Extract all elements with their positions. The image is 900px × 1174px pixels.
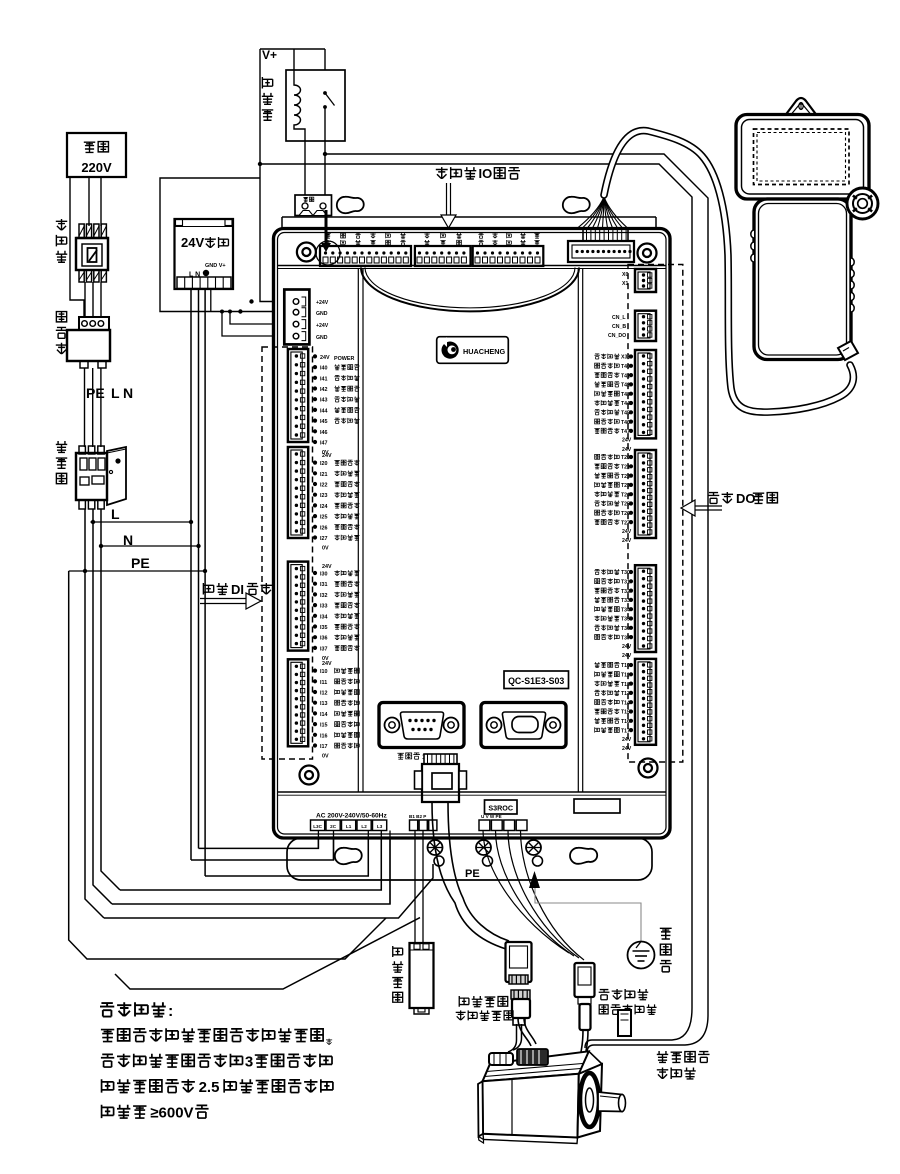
- svg-text:I21: I21: [320, 472, 328, 478]
- svg-text:DI: DI: [231, 582, 244, 597]
- svg-text:I15: I15: [320, 723, 328, 729]
- svg-text:I30: I30: [320, 572, 328, 578]
- svg-text:+24V: +24V: [316, 300, 329, 306]
- svg-text:I44: I44: [320, 408, 328, 414]
- svg-text:24V: 24V: [622, 447, 632, 453]
- svg-text:S3ROC: S3ROC: [488, 804, 513, 813]
- svg-text:I13: I13: [320, 701, 328, 707]
- svg-text:I34: I34: [320, 614, 328, 620]
- svg-text:PE: PE: [86, 385, 105, 401]
- svg-text:I11: I11: [320, 680, 327, 686]
- svg-text:2.5: 2.5: [199, 1079, 220, 1096]
- svg-text:V+: V+: [262, 48, 277, 62]
- svg-text:24V: 24V: [322, 661, 332, 667]
- svg-text:I32: I32: [320, 593, 328, 599]
- svg-text:B1 B2 P: B1 B2 P: [409, 814, 426, 819]
- svg-text:24V: 24V: [622, 653, 632, 659]
- svg-text:L: L: [111, 506, 120, 522]
- svg-text:I33: I33: [320, 604, 328, 610]
- svg-text:I20: I20: [320, 461, 328, 467]
- svg-text:2C: 2C: [330, 824, 337, 829]
- svg-text:I41: I41: [320, 376, 328, 382]
- svg-text:24V: 24V: [622, 737, 632, 743]
- svg-text:24V: 24V: [320, 355, 330, 361]
- svg-text:PE: PE: [131, 555, 150, 571]
- svg-text:L: L: [111, 385, 120, 401]
- svg-text:≥600V: ≥600V: [150, 1105, 193, 1122]
- svg-text:I40: I40: [320, 366, 328, 372]
- svg-text:I45: I45: [320, 419, 328, 425]
- svg-text:L2: L2: [361, 824, 367, 829]
- svg-text:PE: PE: [465, 868, 480, 880]
- svg-text:DO: DO: [736, 491, 756, 506]
- svg-text:X38: X38: [621, 355, 630, 361]
- svg-text:GND: GND: [316, 335, 328, 341]
- svg-text:220V: 220V: [81, 160, 112, 175]
- svg-text:CN_L: CN_L: [612, 315, 626, 321]
- svg-text::: :: [168, 1003, 173, 1020]
- svg-text:I23: I23: [320, 493, 328, 499]
- svg-text:I12: I12: [320, 691, 328, 697]
- svg-text:I31: I31: [320, 582, 328, 588]
- svg-text:CN_DO: CN_DO: [608, 333, 626, 339]
- svg-text:I27: I27: [320, 536, 328, 542]
- svg-text:I37: I37: [320, 646, 328, 652]
- svg-text:I16: I16: [320, 733, 328, 739]
- svg-text:I14: I14: [320, 712, 328, 718]
- svg-text:24V: 24V: [181, 235, 204, 250]
- svg-text:HUACHENG: HUACHENG: [463, 347, 505, 356]
- svg-text:I17: I17: [320, 744, 328, 750]
- svg-text:+24V: +24V: [316, 323, 329, 329]
- svg-text:I10: I10: [320, 669, 328, 675]
- svg-text:I25: I25: [320, 515, 328, 521]
- svg-text:GND: GND: [316, 311, 328, 317]
- svg-text:AC 200V-240V/50-60Hz: AC 200V-240V/50-60Hz: [316, 813, 387, 820]
- svg-text:L3C: L3C: [313, 824, 322, 829]
- svg-text:3: 3: [245, 1054, 253, 1071]
- svg-text:I42: I42: [320, 387, 328, 393]
- svg-text:I22: I22: [320, 483, 328, 489]
- svg-text:L1: L1: [346, 824, 352, 829]
- svg-text:24V: 24V: [622, 438, 632, 444]
- svg-text:24V: 24V: [622, 746, 632, 752]
- svg-text:24V: 24V: [322, 564, 332, 570]
- svg-text:N: N: [123, 385, 133, 401]
- svg-text:24V: 24V: [622, 538, 632, 544]
- svg-text:I46: I46: [320, 430, 328, 436]
- svg-text:I43: I43: [320, 398, 328, 404]
- svg-text:I47: I47: [320, 441, 328, 447]
- svg-text:QC-S1E3-S03: QC-S1E3-S03: [508, 676, 564, 686]
- svg-text:I24: I24: [320, 504, 328, 510]
- svg-text:GND V+: GND V+: [205, 263, 226, 269]
- svg-text:CN_B: CN_B: [612, 324, 626, 330]
- svg-text:I35: I35: [320, 625, 328, 631]
- svg-text:24V: 24V: [622, 644, 632, 650]
- svg-text:POWER: POWER: [334, 356, 354, 362]
- svg-text:I36: I36: [320, 636, 328, 642]
- svg-text:IO: IO: [479, 166, 493, 181]
- svg-text:24V: 24V: [322, 453, 332, 459]
- svg-text:24V: 24V: [622, 529, 632, 535]
- svg-text:0V: 0V: [322, 546, 329, 552]
- svg-text:I26: I26: [320, 525, 328, 531]
- svg-text:L3: L3: [377, 824, 383, 829]
- svg-text:0V: 0V: [322, 754, 329, 760]
